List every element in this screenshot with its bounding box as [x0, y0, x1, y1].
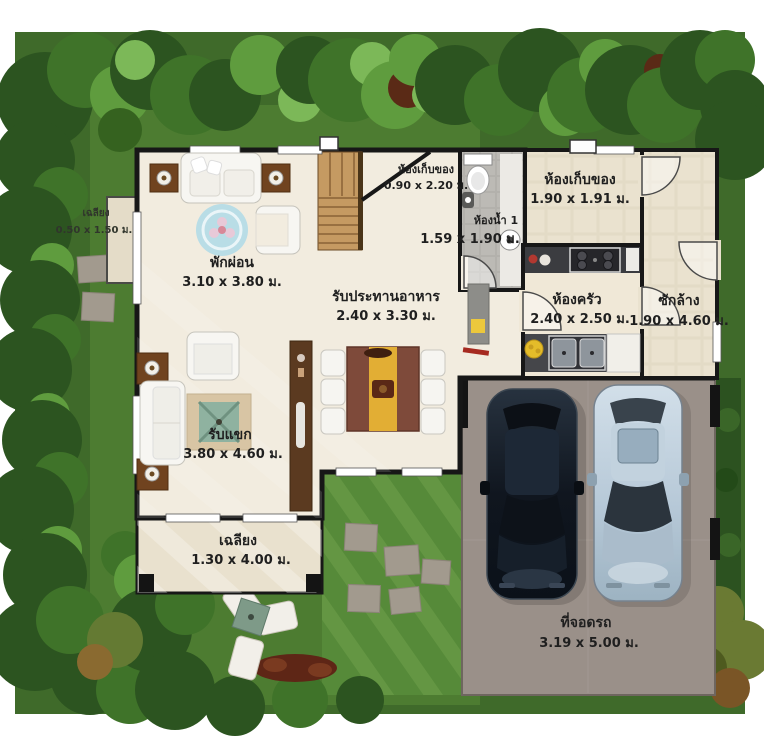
label-kitchen-name: ห้องครัว — [552, 292, 601, 308]
label-storage-dims: 1.90 x 1.91 ม. — [530, 192, 630, 207]
label-porch-front-name: เฉลียง — [219, 533, 257, 549]
label-porch-front-dims: 1.30 x 4.00 ม. — [191, 553, 291, 568]
label-relax-dims: 3.10 x 3.80 ม. — [182, 275, 282, 290]
label-dining-name: รับประทานอาหาร — [332, 289, 440, 305]
tv-cabinet — [290, 341, 312, 511]
car-light — [587, 385, 691, 607]
sofa-top — [181, 153, 261, 203]
fruit-bowl-icon — [525, 340, 543, 358]
car-dark — [480, 389, 586, 605]
porch-post — [139, 574, 154, 592]
fridge-cabinet — [468, 284, 489, 344]
label-laundry-dims: 1.90 x 4.60 ม. — [629, 314, 729, 329]
toilet-icon — [464, 154, 492, 165]
armchair-top — [256, 206, 300, 254]
dining-set — [321, 347, 445, 434]
label-living-name: รับแขก — [208, 427, 251, 443]
armchair-living — [187, 332, 239, 380]
sofa-left — [140, 381, 185, 465]
label-relax-name: พักผ่อน — [210, 255, 254, 271]
label-laundry-name: ซักล้าง — [658, 293, 699, 309]
room-porch-side-floor — [107, 197, 137, 283]
label-bathroom-dims: 1.59 x 1.90 ม. — [420, 232, 520, 247]
porch-post — [306, 574, 321, 592]
label-bathroom-name: ห้องน้ำ 1 — [474, 212, 518, 227]
round-rug — [196, 204, 248, 256]
water-heater-icon — [570, 140, 596, 153]
label-under-stair-storage-name: ห้องเก็บของ — [398, 162, 454, 176]
label-parking-name: ที่จอดรถ — [561, 612, 612, 631]
label-parking-dims: 3.19 x 5.00 ม. — [539, 636, 639, 651]
label-kitchen-dims: 2.40 x 2.50 ม. — [530, 312, 630, 327]
label-porch-side-name: เฉลียง — [82, 207, 109, 219]
floor-plan-canvas: พักผ่อน 3.10 x 3.80 ม. ห้องเก็บของ 0.90 … — [0, 0, 764, 750]
label-dining-dims: 2.40 x 3.30 ม. — [336, 309, 436, 324]
label-porch-side-dims: 0.50 x 1.50 ม. — [56, 225, 133, 236]
floor-plan-drawing: พักผ่อน 3.10 x 3.80 ม. ห้องเก็บของ 0.90 … — [0, 0, 764, 750]
label-storage-name: ห้องเก็บของ — [544, 170, 616, 188]
ac-unit-icon — [320, 137, 338, 150]
label-living-dims: 3.80 x 4.60 ม. — [183, 447, 283, 462]
label-under-stair-storage-dims: 0.90 x 2.20 ม. — [384, 179, 468, 192]
